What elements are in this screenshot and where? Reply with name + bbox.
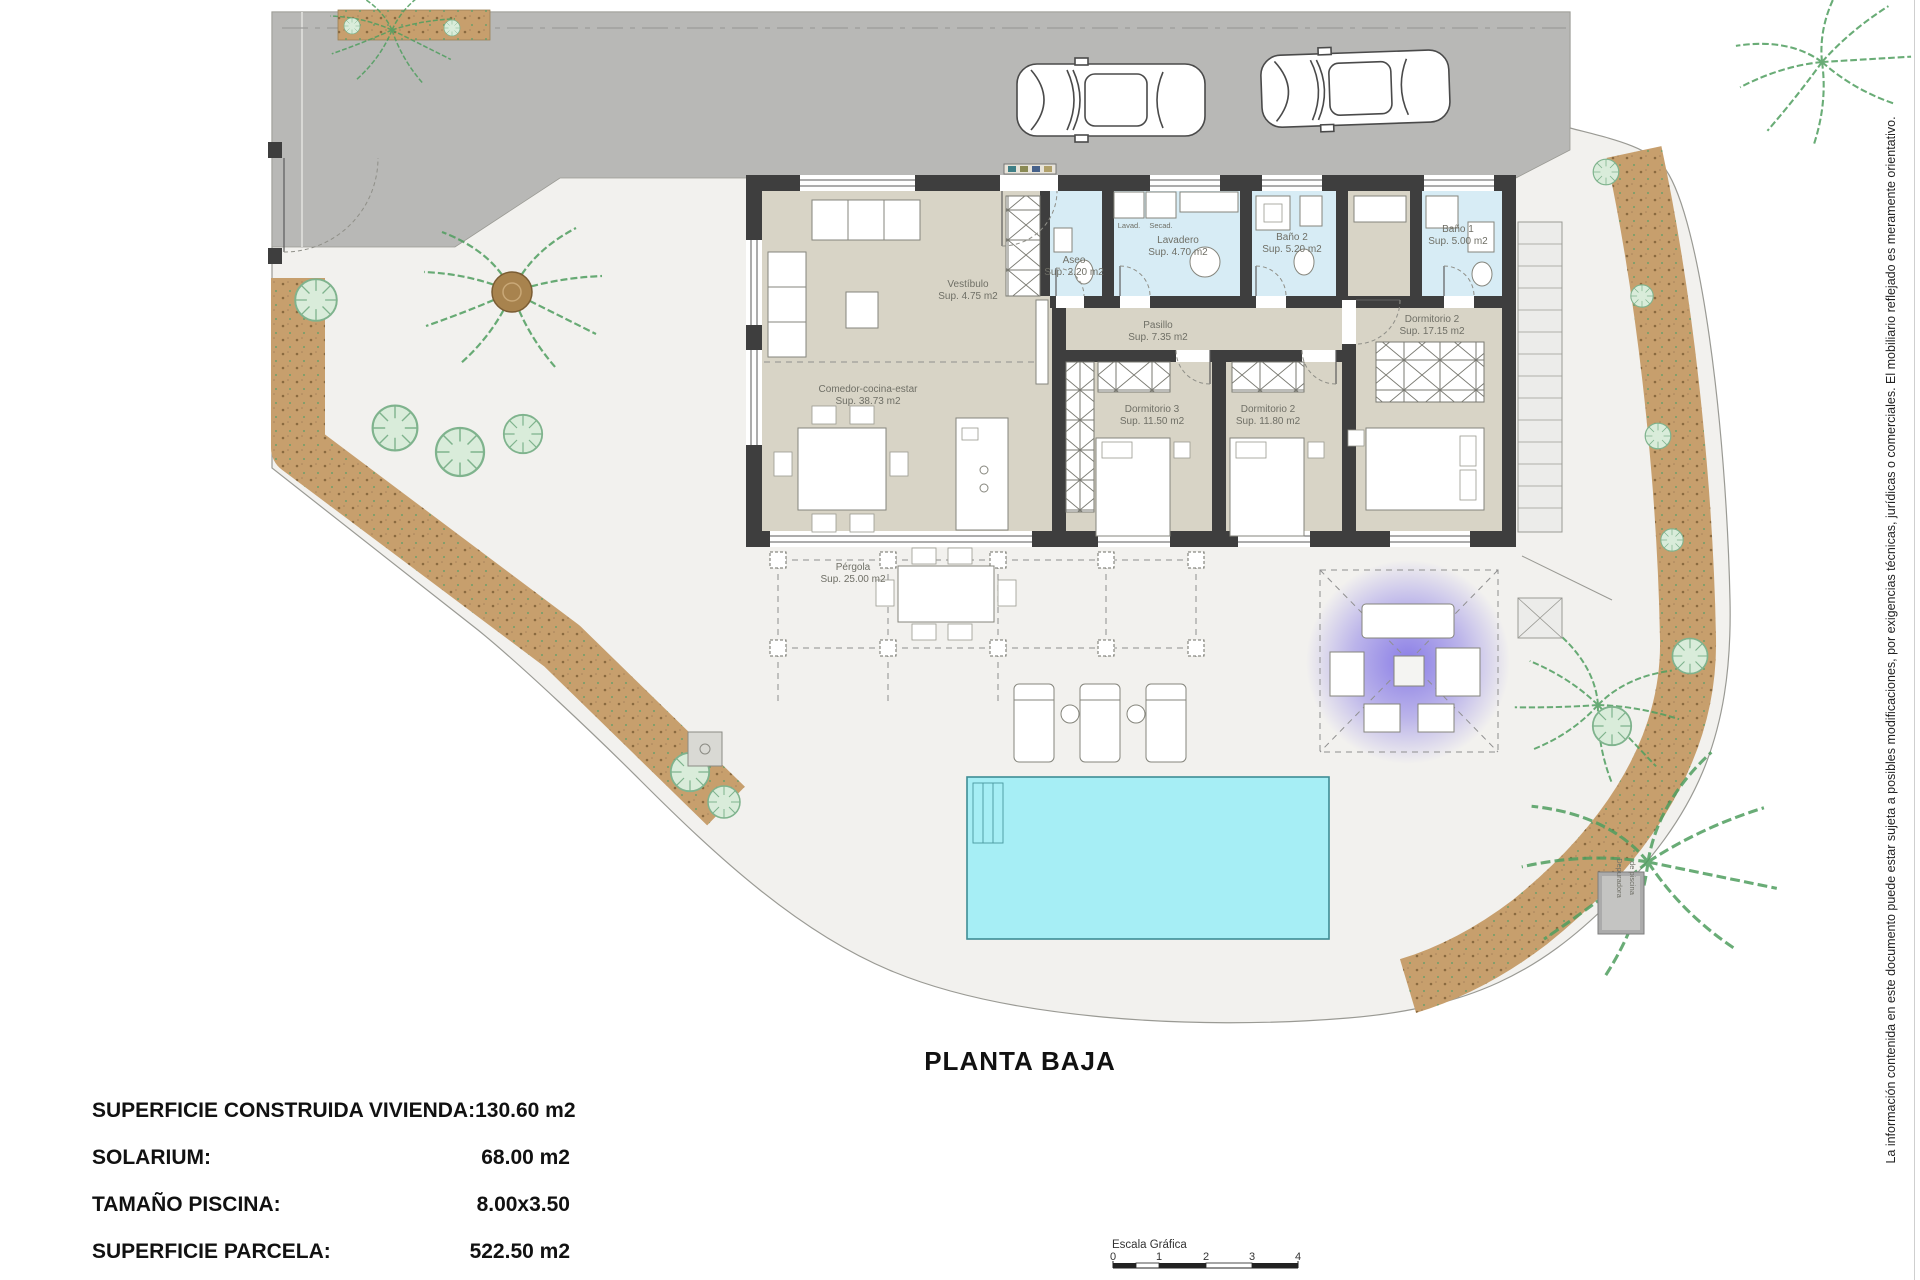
label-bano1-area: Sup. 5.00 m2 [1428,236,1488,247]
page-title: PLANTA BAJA [820,1046,1220,1077]
label-dorm1-name: Dormitorio 2 [1405,314,1460,325]
label-pergola-area: Sup. 25.00 m2 [820,574,885,585]
summary-block: SUPERFICIE CONSTRUIDA VIVIENDA: 130.60 m… [92,1098,570,1280]
summary-row-vivienda: SUPERFICIE CONSTRUIDA VIVIENDA: 130.60 m… [92,1098,570,1124]
porch-table [898,566,994,622]
label-lavadero-area: Sup. 4.70 m2 [1148,247,1208,258]
label-living-area: Sup. 38.73 m2 [835,396,900,407]
pool [967,777,1329,939]
summary-row-solarium: SOLARIUM: 68.00 m2 [92,1145,570,1171]
car-1 [1017,58,1205,142]
legal-disclaimer: La información contenida en este documen… [1884,15,1902,1265]
summary-value: 522.50 m2 [470,1239,570,1265]
label-bano2-area: Sup. 5.20 m2 [1262,244,1322,255]
summary-label: SOLARIUM: [92,1145,211,1171]
label-vestibulo-area: Sup. 4.75 m2 [938,291,998,302]
label-aseo-name: Aseo [1063,255,1086,266]
summary-value: 68.00 m2 [481,1145,570,1171]
label-dorm2-name: Dormitorio 2 [1241,404,1296,415]
label-pasillo-area: Sup. 7.35 m2 [1128,332,1188,343]
label-pergola-name: Pérgola [836,562,871,573]
floor-plan-page: Depuradora de piscina [0,0,1920,1280]
pool-purifier-label-line2: de piscina [1628,861,1637,896]
utility-box [688,732,722,766]
label-living-name: Comedor-cocina-estar [819,384,919,395]
summary-value: 130.60 m2 [475,1098,575,1124]
summary-row-parcela: SUPERFICIE PARCELA: 522.50 m2 [92,1239,570,1265]
sun-loungers [1014,684,1186,762]
label-aseo-area: Sup. 2.20 m2 [1044,267,1104,278]
summary-value: 8.00x3.50 [477,1192,570,1218]
summary-label: SUPERFICIE CONSTRUIDA VIVIENDA: [92,1098,475,1124]
label-vestibulo-name: Vestíbulo [947,279,989,290]
label-dorm2-area: Sup. 11.80 m2 [1236,416,1301,427]
scale-tick-1: 1 [1156,1251,1162,1263]
label-dryer: Secad. [1149,221,1172,230]
car-2 [1260,43,1451,134]
scale-tick-2: 2 [1203,1251,1209,1263]
floor-plan-drawing: Depuradora de piscina [0,0,1920,1280]
scale-bar: Escala Gráfica 0 1 2 3 4 [1110,1239,1301,1268]
label-dorm1-area: Sup. 17.15 m2 [1399,326,1464,337]
label-dorm3-name: Dormitorio 3 [1125,404,1180,415]
label-washer: Lavad. [1118,221,1141,230]
summary-label: TAMAÑO PISCINA: [92,1192,281,1218]
palm-trunk [492,272,532,312]
label-bano2-name: Baño 2 [1276,232,1308,243]
label-pasillo-name: Pasillo [1143,320,1173,331]
scale-bar-title: Escala Gráfica [1112,1239,1187,1251]
page-frame-line [1914,0,1915,1280]
summary-label: SUPERFICIE PARCELA: [92,1239,331,1265]
label-dorm3-area: Sup. 11.50 m2 [1120,416,1185,427]
pool-purifier-label-line1: Depuradora [1615,858,1624,898]
label-lavadero-name: Lavadero [1157,235,1199,246]
label-bano1-name: Baño 1 [1442,224,1474,235]
outdoor-seating-pergola [1306,560,1510,764]
summary-row-piscina: TAMAÑO PISCINA: 8.00x3.50 [92,1192,570,1218]
scale-tick-3: 3 [1249,1251,1255,1263]
entrance-mat [1004,164,1056,174]
